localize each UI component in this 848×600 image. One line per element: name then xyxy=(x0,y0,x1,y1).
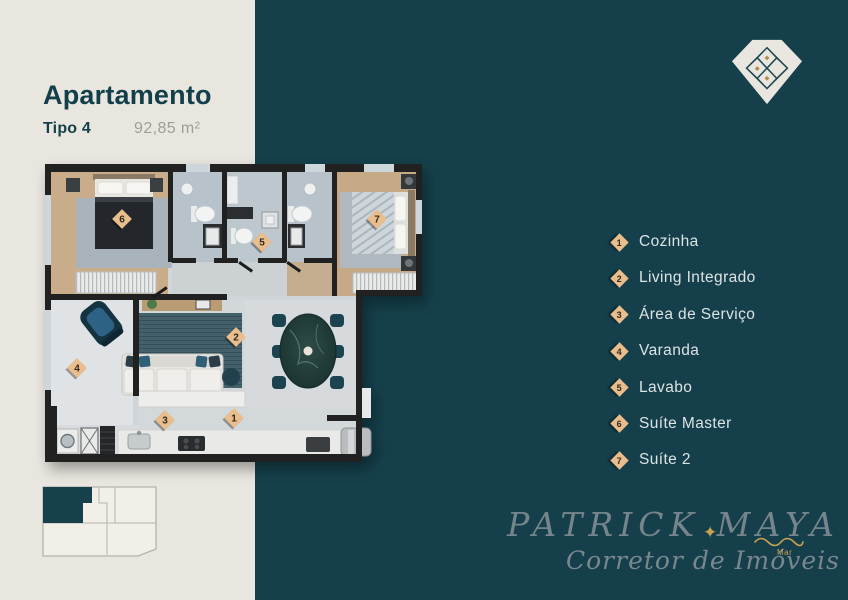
legend-item-2: 2Living Integrado xyxy=(613,267,756,289)
legend-item-4: 4Varanda xyxy=(613,340,756,362)
legend-badge-number: 2 xyxy=(617,273,622,283)
legend-badge-number: 4 xyxy=(617,346,622,356)
unit-type-label: Tipo 4 xyxy=(43,120,91,138)
legend-item-label: Varanda xyxy=(639,342,699,360)
svg-text:4: 4 xyxy=(74,364,80,375)
legend-diamond-badge: 3 xyxy=(610,306,628,324)
keyplan xyxy=(40,483,160,561)
legend-item-label: Living Integrado xyxy=(639,269,756,287)
legend-diamond-badge: 4 xyxy=(610,342,628,360)
legend-item-label: Suíte Master xyxy=(639,415,732,433)
pouf xyxy=(222,368,240,386)
legend-item-label: Área de Serviço xyxy=(639,306,755,324)
legend-item-label: Lavabo xyxy=(639,379,692,397)
svg-text:1: 1 xyxy=(231,414,237,425)
kitchen-counter xyxy=(118,428,371,456)
service-area-appliances xyxy=(57,426,115,455)
legend: 1Cozinha2Living Integrado3Área de Serviç… xyxy=(613,231,756,486)
legend-badge-number: 6 xyxy=(617,419,622,429)
floor-plan: 1234567 xyxy=(40,158,428,468)
legend-diamond-badge: 5 xyxy=(610,378,628,396)
legend-item-label: Cozinha xyxy=(639,233,699,251)
legend-diamond-badge: 7 xyxy=(610,451,628,469)
legend-item-7: 7Suíte 2 xyxy=(613,449,756,471)
legend-badge-number: 1 xyxy=(617,237,622,247)
brochure-page: { "header": { "title": "Apartamento", "t… xyxy=(0,0,848,600)
kitchen-island xyxy=(138,391,245,407)
svg-text:7: 7 xyxy=(374,215,380,226)
diamond-logo-icon xyxy=(728,36,806,108)
svg-text:3: 3 xyxy=(162,416,168,427)
legend-badge-number: 5 xyxy=(617,383,622,393)
entry-step xyxy=(362,388,371,418)
legend-diamond-badge: 2 xyxy=(610,269,628,287)
unit-area-label: 92,85 m² xyxy=(134,120,200,138)
svg-text:6: 6 xyxy=(119,215,125,226)
star-icon: ✦ xyxy=(703,523,717,543)
legend-item-6: 6Suíte Master xyxy=(613,413,756,435)
legend-diamond-badge: 1 xyxy=(610,233,628,251)
header: Apartamento Tipo 4 92,85 m² xyxy=(43,80,253,138)
suite-master-bench xyxy=(76,272,156,293)
mar-label: Mar xyxy=(777,548,792,557)
page-title: Apartamento xyxy=(43,80,253,111)
legend-item-1: 1Cozinha xyxy=(613,231,756,253)
legend-item-5: 5Lavabo xyxy=(613,377,756,399)
svg-text:5: 5 xyxy=(259,238,265,249)
dining-table xyxy=(272,314,344,389)
legend-item-label: Suíte 2 xyxy=(639,451,691,469)
wave-icon xyxy=(753,535,805,547)
legend-badge-number: 3 xyxy=(617,310,622,320)
broker-signature: PATRICK MAYA Corretor de Imóveis ✦ Mar xyxy=(505,505,840,597)
legend-diamond-badge: 6 xyxy=(610,415,628,433)
legend-badge-number: 7 xyxy=(617,455,622,465)
legend-item-3: 3Área de Serviço xyxy=(613,304,756,326)
svg-text:2: 2 xyxy=(233,333,239,344)
